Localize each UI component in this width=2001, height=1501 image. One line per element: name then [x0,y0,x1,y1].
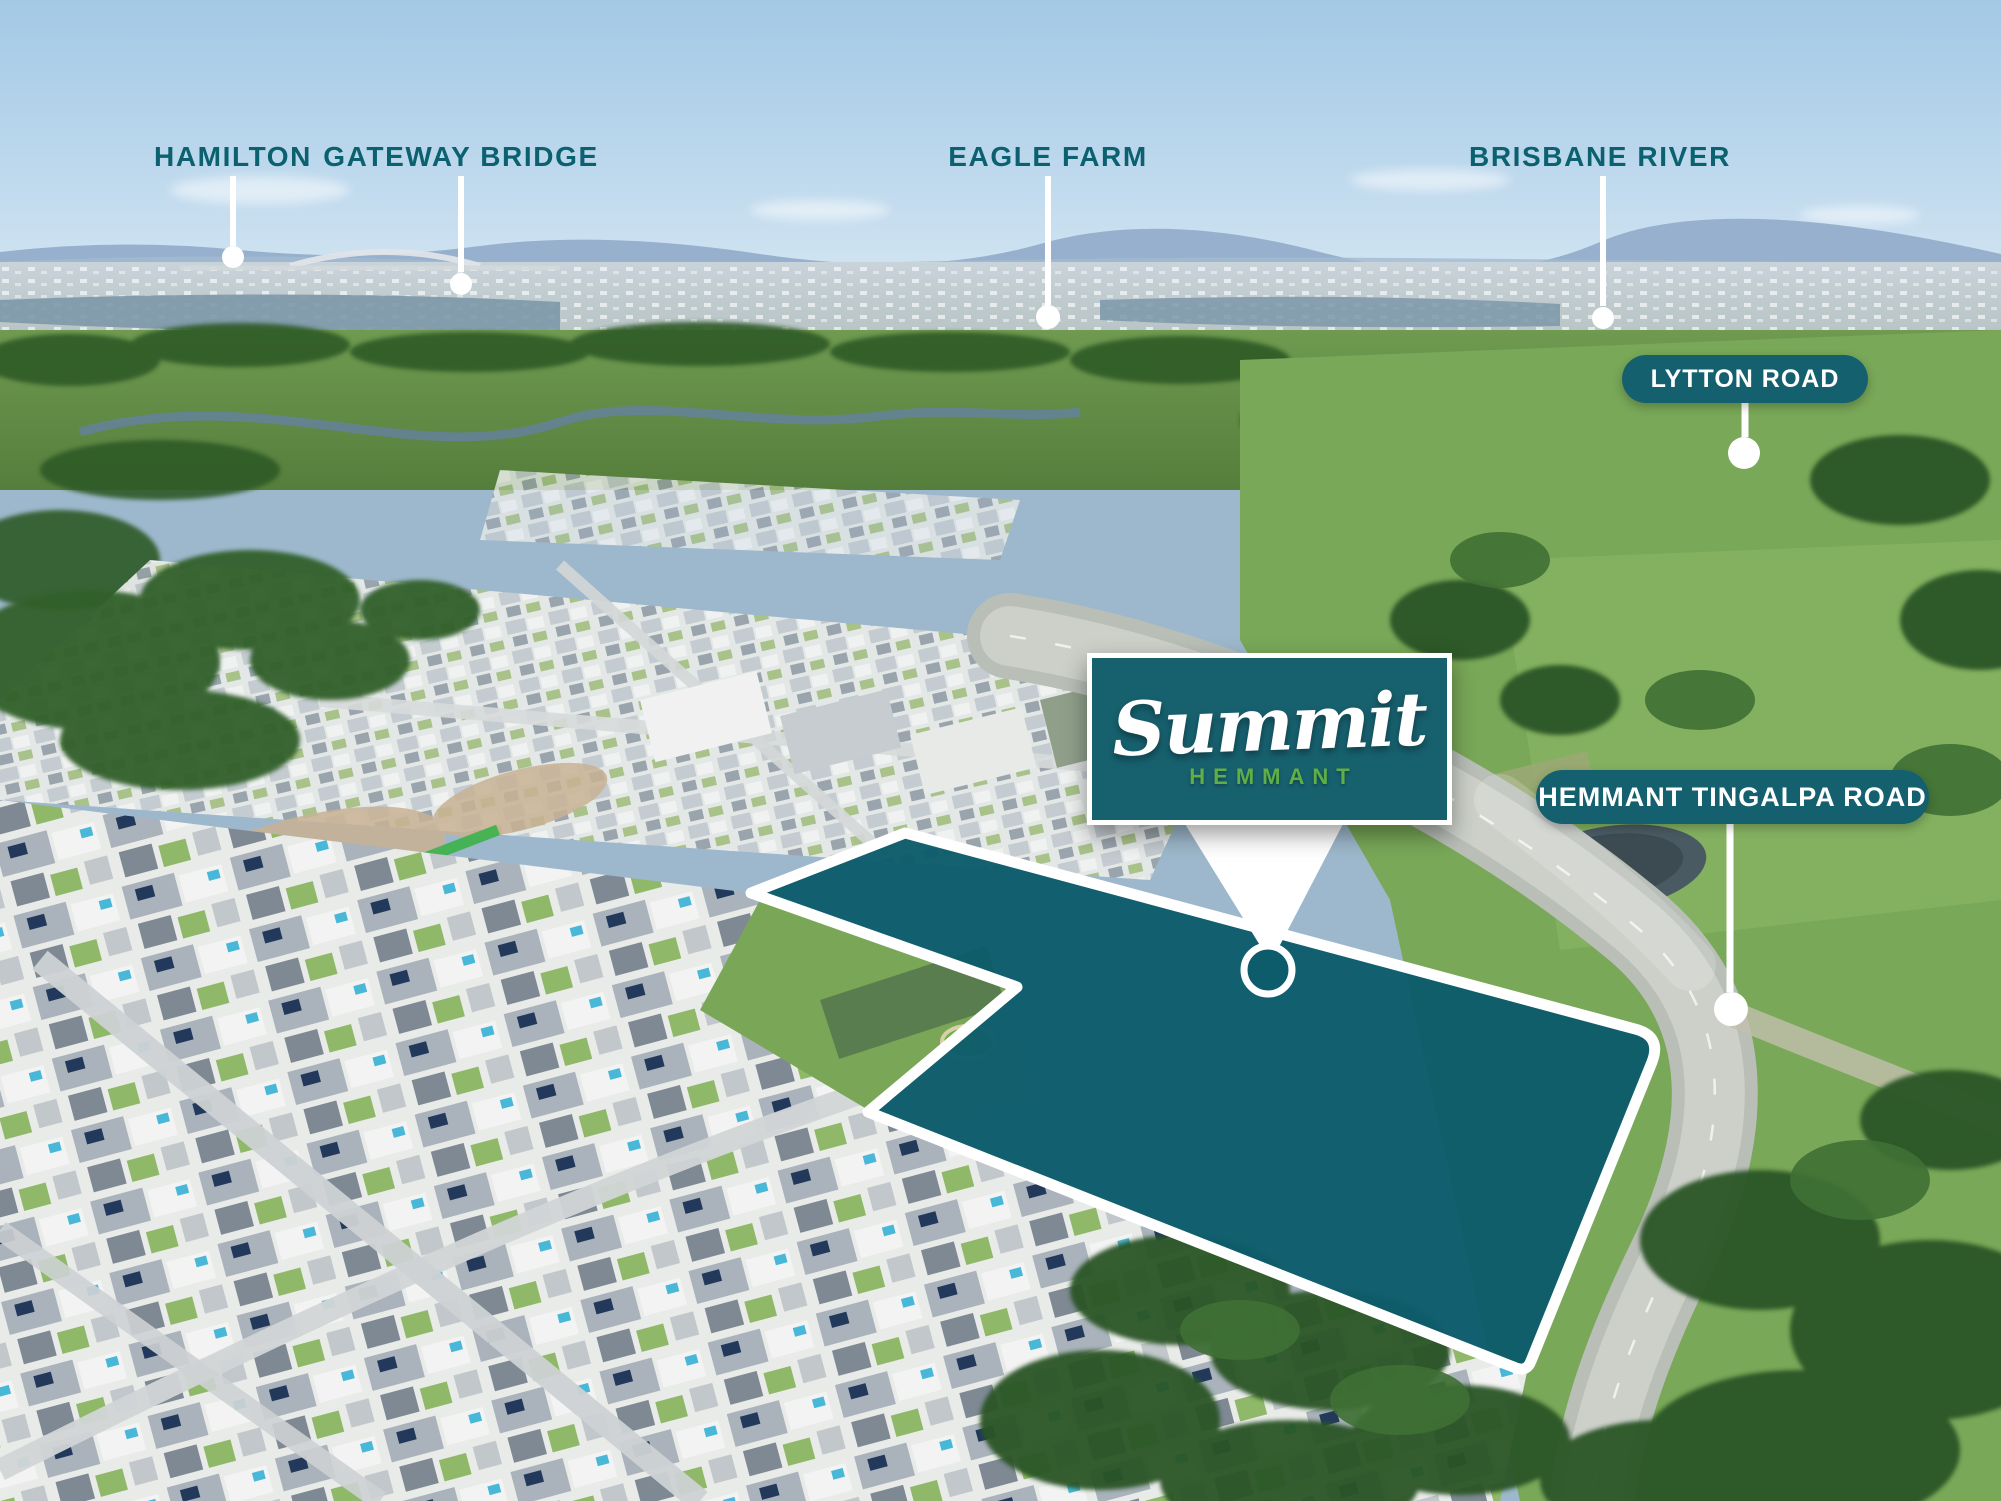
summit-hemmant-logo: Summit HEMMANT [1087,653,1452,825]
road-badge-lytton-road: LYTTON ROAD [1622,355,1868,403]
eagle-farm-pin-dot-icon [1036,305,1060,329]
hemmant-tingalpa-road-pin-dot-icon [1714,992,1748,1026]
hamilton-pin [222,176,244,268]
brisbane-river-pin-dot-icon [1592,307,1614,329]
brisbane-river-pin [1592,176,1614,329]
eagle-farm-pin [1036,176,1060,329]
gateway-bridge-pin-dot-icon [450,273,472,295]
logo-name: Summit [1111,683,1428,768]
road-badge-hemmant-tingalpa-road: HEMMANT TINGALPA ROAD [1536,770,1929,824]
annotation-overlay [0,0,2001,1501]
lytton-road-pin-dot-icon [1728,437,1760,469]
aerial-marketing-image: HAMILTON GATEWAY BRIDGE EAGLE FARM BRISB… [0,0,2001,1501]
hemmant-tingalpa-road-pin [1714,824,1748,1026]
gateway-bridge-pin [450,176,472,295]
hamilton-pin-dot-icon [222,246,244,268]
landmark-label-eagle-farm: EAGLE FARM [948,141,1148,173]
logo-pointer-ring-icon [1244,946,1292,994]
landmark-label-gateway-bridge: GATEWAY BRIDGE [323,141,598,173]
lytton-road-pin [1728,403,1760,469]
landmark-label-hamilton: HAMILTON [154,141,312,173]
landmark-label-brisbane-river: BRISBANE RIVER [1469,141,1731,173]
site-parcel-highlight [751,833,1655,1369]
